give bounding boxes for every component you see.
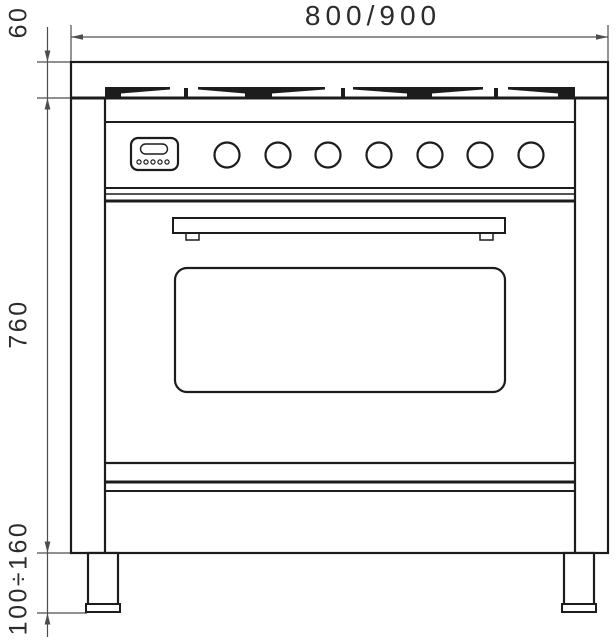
display-dot-icon [158, 160, 162, 164]
grate-block [105, 87, 121, 98]
handle-bracket [186, 233, 199, 240]
left-foot [86, 604, 120, 612]
arrow-up-icon [45, 613, 51, 625]
arrow-down-icon [45, 51, 51, 63]
control-panel [131, 138, 544, 170]
oven-door [173, 218, 505, 392]
oven-window [175, 268, 505, 392]
grate-gap-tick [494, 88, 498, 98]
range-cooker-drawing [0, 0, 616, 641]
display-dot-icon [144, 160, 148, 164]
display-dot-icon [165, 160, 169, 164]
grate-block [245, 87, 272, 98]
control-knob [215, 143, 240, 168]
arrow-down-icon [45, 542, 51, 554]
grate-block [558, 87, 575, 98]
dimension-lines [37, 25, 608, 637]
arrow-up-icon [45, 98, 51, 110]
cooker-body [71, 62, 608, 553]
dimension-label-body-height: 760 [7, 299, 32, 348]
left-leg [88, 553, 118, 605]
door-handle [173, 218, 505, 233]
dimension-diagram: 800/900 60 760 100÷160 [0, 0, 616, 641]
grate-gap-tick [184, 88, 188, 98]
control-knob [519, 143, 544, 168]
control-knob [367, 143, 392, 168]
control-knob [418, 143, 443, 168]
burner-grates [105, 87, 575, 98]
grate-finger [272, 87, 325, 94]
grate-finger [198, 87, 245, 94]
clock-display-buttons [137, 160, 169, 164]
grate-finger [353, 87, 407, 94]
grate-finger [508, 87, 558, 94]
dimension-label-leg-height: 100÷160 [7, 521, 32, 636]
grate-finger [432, 87, 483, 94]
display-dot-icon [151, 160, 155, 164]
handle-bracket [480, 233, 493, 240]
display-dot-icon [137, 160, 141, 164]
dimension-label-width: 800/900 [305, 2, 441, 30]
arrow-right-icon [596, 34, 608, 40]
grate-gap-tick [341, 88, 345, 98]
right-leg [564, 553, 594, 605]
control-knob [316, 143, 341, 168]
control-knob [468, 143, 493, 168]
grate-finger [121, 87, 170, 94]
legs [86, 553, 596, 612]
body-outline [71, 62, 608, 553]
clock-display-window [141, 144, 168, 154]
grate-block [407, 87, 432, 98]
right-foot [562, 604, 596, 612]
dimension-label-cooktop-height: 60 [7, 6, 32, 39]
arrow-left-icon [71, 34, 83, 40]
control-knobs [215, 143, 544, 168]
control-knob [266, 143, 291, 168]
